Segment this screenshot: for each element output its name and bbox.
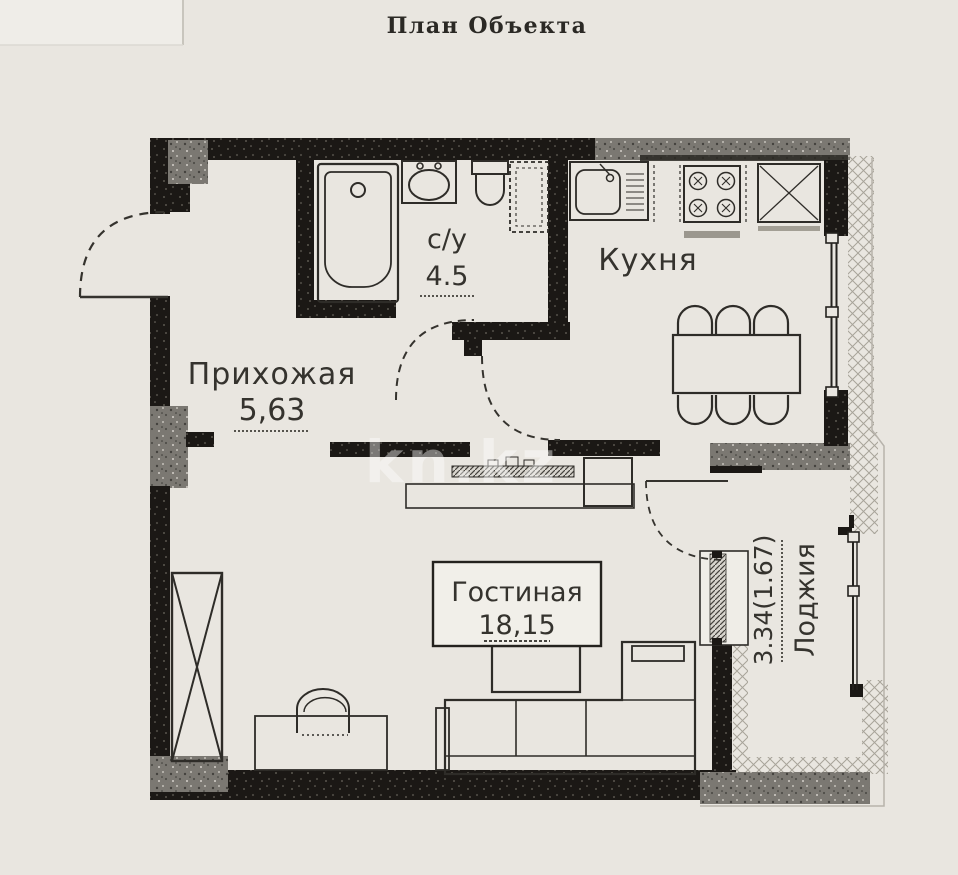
loggia-area: 3.34(1.67) xyxy=(749,535,778,666)
wall-left-column-stub xyxy=(186,432,214,447)
dining-table xyxy=(673,335,800,393)
wall-bathroom-stub xyxy=(464,340,482,356)
wall-left-middle xyxy=(150,296,170,408)
living-area: 18,15 xyxy=(478,610,555,641)
wall-loggia-bottom xyxy=(700,772,870,804)
wall-left-column xyxy=(150,406,188,488)
wall-top-left xyxy=(158,138,598,160)
watermark: kn.kz xyxy=(365,428,559,496)
hallway-name: Прихожая xyxy=(188,357,357,392)
stove-front xyxy=(684,231,740,238)
bathroom-area: 4.5 xyxy=(426,261,469,292)
kitchen-name: Кухня xyxy=(598,243,697,278)
wall-kitchen-right-bottom xyxy=(824,390,848,446)
wall-kitchen-right-top xyxy=(824,160,848,236)
wall-bathroom-left xyxy=(296,160,314,318)
wall-left-corner-block xyxy=(168,140,208,184)
wall-kitchen-loggia-block xyxy=(710,443,850,470)
wall-top-right-edge xyxy=(640,155,848,161)
wall-left-stub xyxy=(168,184,190,212)
living-name: Гостиная xyxy=(451,577,583,608)
room-label-kitchen: Кухня xyxy=(598,243,697,278)
room-label-living: Гостиная 18,15 xyxy=(433,562,601,646)
hallway-area: 5,63 xyxy=(239,393,306,428)
loggia-cabinet xyxy=(700,551,748,645)
bathroom-name: с/у xyxy=(427,224,467,255)
wall-left-lower xyxy=(150,486,170,772)
paper-corner xyxy=(0,0,183,45)
floor-plan-page: План Объекта xyxy=(0,0,958,875)
wall-loggia-hook-tick xyxy=(849,515,854,528)
wall-kitchen-bottom xyxy=(548,440,660,456)
floor-plan-drawing: План Объекта xyxy=(0,0,958,875)
page-title: План Объекта xyxy=(387,13,588,39)
wall-left-upper xyxy=(150,138,170,214)
loggia-name: Лоджия xyxy=(790,543,821,657)
wall-bathroom-kitchen xyxy=(548,160,568,340)
wall-kitchen-loggia-edge xyxy=(710,466,762,473)
